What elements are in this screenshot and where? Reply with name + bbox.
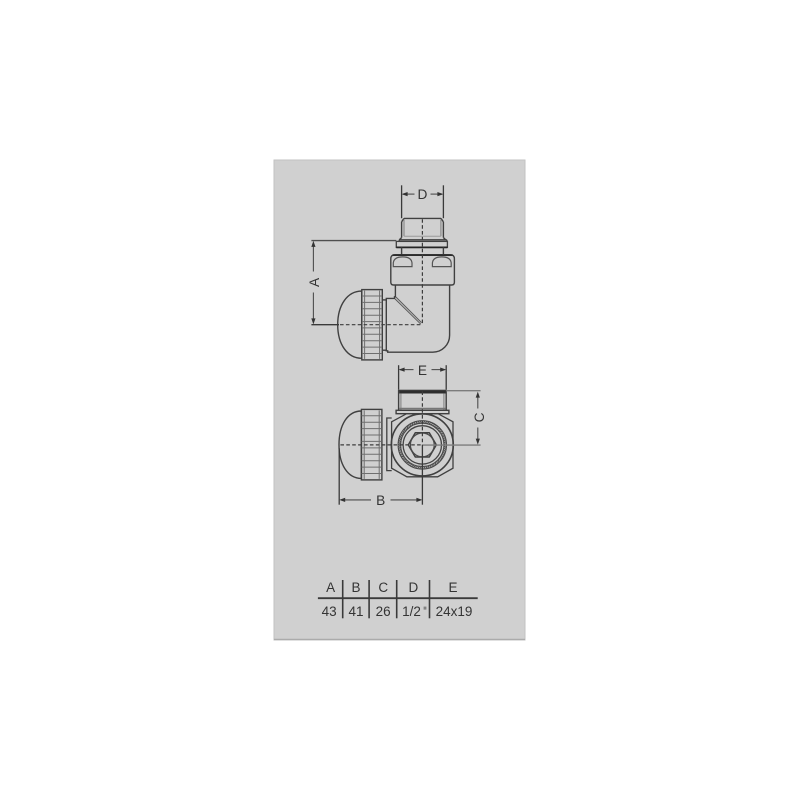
svg-text:B: B (376, 493, 385, 508)
svg-text:43: 43 (322, 604, 337, 619)
svg-text:24x19: 24x19 (436, 604, 473, 619)
svg-text:E: E (448, 580, 457, 595)
svg-text:26: 26 (376, 604, 391, 619)
svg-text:B: B (351, 580, 360, 595)
svg-text:1/2: 1/2 (402, 604, 421, 619)
svg-text:D: D (409, 580, 419, 595)
svg-text:A: A (326, 580, 335, 595)
svg-text:41: 41 (348, 604, 363, 619)
svg-text:E: E (418, 363, 427, 378)
svg-text:C: C (378, 580, 388, 595)
svg-text:D: D (418, 187, 428, 202)
svg-text:A: A (307, 277, 322, 287)
svg-text:C: C (472, 412, 487, 422)
